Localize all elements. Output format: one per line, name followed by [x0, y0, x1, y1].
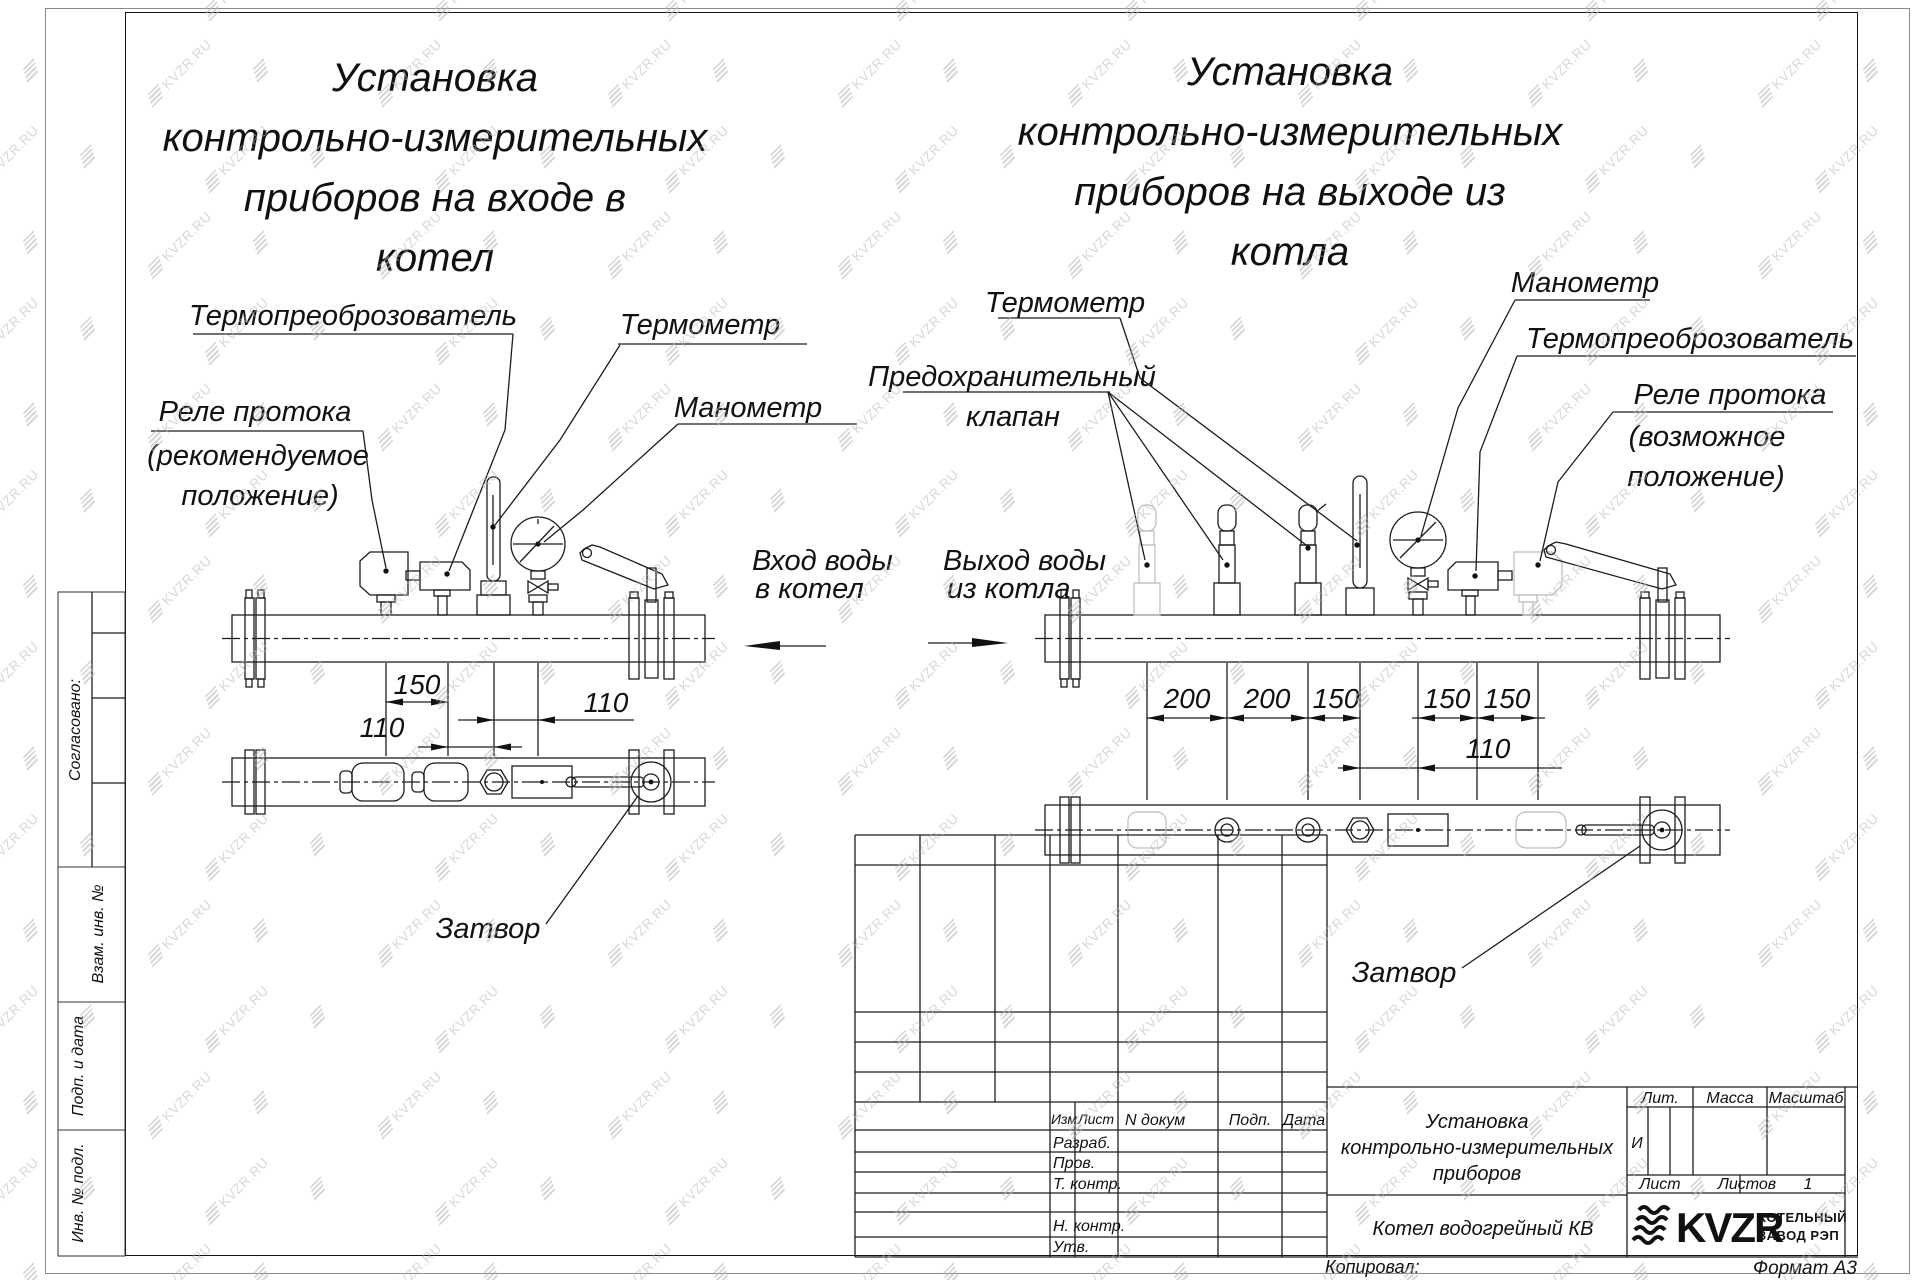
watermark-item	[21, 921, 41, 941]
left-title-line1: Установка	[150, 48, 720, 108]
right-title-line2: контрольно-измерительных	[950, 102, 1630, 162]
left-label-thermometer: Термометр	[620, 309, 780, 341]
tb-lit-value: И	[1631, 1135, 1643, 1152]
right-pressure-gauge-device	[1390, 512, 1446, 615]
tb-col-list: Лист	[1077, 1111, 1114, 1127]
sidebar-column: Согласовано: Взам. инв. № Подп. и дата И…	[54, 588, 129, 1260]
watermark-item	[21, 61, 41, 81]
watermark-text: KVZR.RU	[0, 639, 42, 694]
watermark-text: KVZR.RU	[0, 811, 42, 866]
right-dim-200a: 200	[1163, 683, 1211, 714]
tb-format: Формат А3	[1753, 1258, 1857, 1279]
inlet-flow-label-2: в котел	[755, 573, 864, 605]
left-title-line3: приборов на входе в	[150, 168, 720, 228]
right-label-safety-valve-1: Предохранительный	[868, 361, 1156, 393]
outlet-flow-arrow	[928, 638, 1008, 647]
watermark-item: KVZR.RU	[0, 1155, 42, 1225]
left-label-flow-relay-1: Реле протока	[159, 396, 352, 428]
tb-col-data: Дата	[1281, 1112, 1325, 1129]
watermark-text: KVZR.RU	[0, 0, 42, 6]
left-title-line2: контрольно-измерительных	[150, 108, 720, 168]
watermark-text: KVZR.RU	[216, 0, 271, 6]
sidebar-podp-data: Подп. и дата	[70, 1016, 87, 1116]
tb-product: Котел водогрейный КВ	[1373, 1218, 1594, 1240]
right-label-flow-relay-1: Реле протока	[1634, 379, 1827, 411]
right-dim-150a: 150	[1313, 683, 1360, 714]
outlet-flow-label-2: из котла	[947, 573, 1071, 605]
safety-valve-2	[1295, 504, 1326, 615]
right-label-flow-relay-2: (возможное	[1629, 421, 1786, 453]
watermark-text: KVZR.RU	[0, 295, 42, 350]
kvzr-watermark-icon	[23, 402, 38, 427]
flow-relay-ghost	[1514, 552, 1562, 615]
kvzr-watermark-icon	[23, 574, 38, 599]
tb-name-line1: Установка	[1424, 1111, 1528, 1133]
kvzr-watermark-icon	[23, 58, 38, 83]
tb-col-izm: Изм	[1051, 1111, 1077, 1127]
tb-sheet-label: Лист	[1638, 1176, 1680, 1193]
watermark-item	[21, 749, 41, 769]
tb-company-line2: ЗАВОД РЭП	[1758, 1228, 1839, 1243]
left-label-flow-relay-3: положение)	[181, 480, 338, 512]
watermark-text: KVZR.RU	[0, 983, 42, 1038]
tb-copied: Копировал:	[1325, 1257, 1420, 1277]
right-shutoff-valve-device	[1544, 542, 1685, 679]
tb-name-line2: контрольно-измерительных	[1341, 1137, 1614, 1159]
drawing-sheet: Установка контрольно-измерительных прибо…	[0, 0, 1920, 1280]
sidebar-agreed: Согласовано:	[67, 679, 84, 781]
watermark-item: KVZR.RU	[0, 295, 42, 365]
right-dim-150b: 150	[1424, 683, 1471, 714]
watermark-text: KVZR.RU	[446, 0, 501, 6]
left-label-valve: Затвор	[436, 913, 541, 945]
watermark-item: KVZR.RU	[0, 639, 42, 709]
sidebar-vzam: Взам. инв. №	[90, 885, 107, 984]
right-label-flow-relay-3: положение)	[1627, 461, 1784, 493]
kvzr-logo-icon	[1633, 1207, 1669, 1243]
watermark-text: KVZR.RU	[0, 1155, 42, 1210]
watermark-item	[21, 1265, 41, 1280]
left-view-drawing: 150 110 110	[130, 240, 930, 1020]
left-dim-110a: 110	[360, 712, 405, 743]
kvzr-watermark-icon	[23, 746, 38, 771]
left-dim-110b: 110	[584, 687, 629, 718]
right-label-thermometer: Термометр	[985, 287, 1145, 319]
tb-mass-label: Масса	[1706, 1090, 1753, 1107]
tb-sheets-value: 1	[1804, 1176, 1813, 1193]
thermometer-device	[477, 477, 510, 615]
right-label-safety-valve-2: клапан	[966, 401, 1060, 433]
tb-col-podp: Подп.	[1229, 1112, 1272, 1129]
kvzr-watermark-icon	[23, 1090, 38, 1115]
watermark-text: KVZR.RU	[0, 123, 42, 178]
left-dim-150: 150	[394, 669, 441, 700]
watermark-item: KVZR.RU	[0, 983, 42, 1053]
watermark-item	[21, 1093, 41, 1113]
inlet-flow-arrow	[744, 641, 826, 650]
shutoff-valve-device	[580, 545, 674, 679]
left-label-flow-relay-2: (рекомендуемое	[147, 440, 369, 472]
tb-row-razrab: Разраб.	[1053, 1135, 1111, 1152]
safety-valve-1	[1214, 505, 1240, 615]
tb-name-line3: приборов	[1433, 1163, 1521, 1185]
right-pipe-side-view	[1035, 590, 1730, 687]
watermark-text: KVZR.RU	[1826, 0, 1881, 6]
tb-row-prov: Пров.	[1053, 1155, 1095, 1172]
left-label-manometer: Манометр	[674, 392, 822, 424]
right-label-manometer: Манометр	[1511, 267, 1659, 299]
kvzr-watermark-icon	[23, 1262, 38, 1280]
tb-row-utv: Утв.	[1052, 1239, 1089, 1256]
tb-col-doc: N докум	[1125, 1112, 1185, 1129]
title-block: Изм Лист N докум Подп. Дата Разраб. Пров…	[855, 835, 1860, 1280]
kvzr-watermark-icon	[23, 230, 38, 255]
right-dim-200b: 200	[1243, 683, 1291, 714]
tb-row-nkontr: Н. контр.	[1053, 1218, 1125, 1235]
thermo-transducer-device	[406, 562, 470, 615]
right-dim-150c: 150	[1484, 683, 1531, 714]
right-title-line1: Установка	[950, 42, 1630, 102]
sidebar-inv: Инв. № подл.	[70, 1143, 87, 1242]
safety-valve-ghost	[1134, 505, 1160, 615]
watermark-text: KVZR.RU	[1136, 0, 1191, 6]
watermark-text: KVZR.RU	[1596, 0, 1651, 6]
tb-sheets-label: Листов	[1717, 1176, 1776, 1193]
watermark-item: KVZR.RU	[0, 0, 42, 20]
watermark-text: KVZR.RU	[676, 0, 731, 6]
right-label-transducer: Термопреоброзователь	[1526, 323, 1854, 355]
right-thermo-transducer-device	[1448, 562, 1512, 615]
tb-scale-label: Масштаб	[1769, 1090, 1845, 1107]
left-pipe-side-view	[222, 590, 715, 687]
right-dim-110: 110	[1466, 733, 1511, 764]
watermark-item	[21, 577, 41, 597]
watermark-text: KVZR.RU	[906, 0, 961, 6]
watermark-text: KVZR.RU	[0, 467, 42, 522]
watermark-item: KVZR.RU	[0, 123, 42, 193]
watermark-item	[21, 405, 41, 425]
left-pipe-top-view	[222, 750, 715, 814]
right-title-line3: приборов на выходе из	[950, 162, 1630, 222]
right-thermometer-device	[1346, 476, 1374, 615]
tb-row-tkontr: Т. контр.	[1053, 1176, 1122, 1193]
kvzr-watermark-icon	[23, 918, 38, 943]
watermark-item: KVZR.RU	[0, 467, 42, 537]
watermark-text: KVZR.RU	[1366, 0, 1421, 6]
tb-company-line1: КОТЕЛЬНЫЙ	[1758, 1210, 1847, 1225]
watermark-item	[21, 233, 41, 253]
watermark-item: KVZR.RU	[0, 811, 42, 881]
left-label-transducer: Термопреоброзователь	[189, 300, 517, 332]
tb-lit-label: Лит.	[1640, 1090, 1678, 1107]
